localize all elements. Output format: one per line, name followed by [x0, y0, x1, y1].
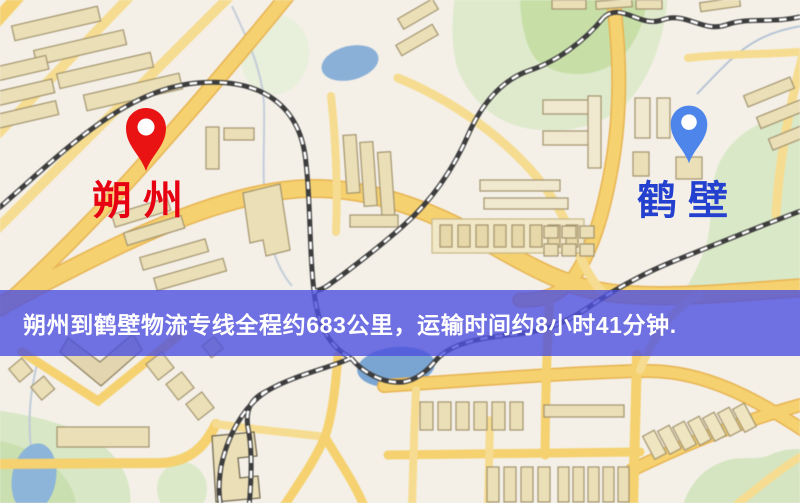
destination-city-label: 鹤壁 — [598, 179, 778, 223]
route-info-text: 朔州到鹤壁物流专线全程约683公里，运输时间约8小时41分钟. — [23, 306, 677, 340]
blue-map-pin-icon[interactable] — [666, 102, 712, 166]
red-map-pin-icon[interactable] — [121, 104, 171, 174]
map-background — [0, 0, 800, 503]
map-canvas[interactable]: 朔州 鹤壁 朔州到鹤壁物流专线全程约683公里，运输时间约8小时41分钟. — [0, 0, 800, 503]
route-info-banner: 朔州到鹤壁物流专线全程约683公里，运输时间约8小时41分钟. — [0, 290, 800, 356]
origin-city-label: 朔州 — [58, 179, 228, 223]
